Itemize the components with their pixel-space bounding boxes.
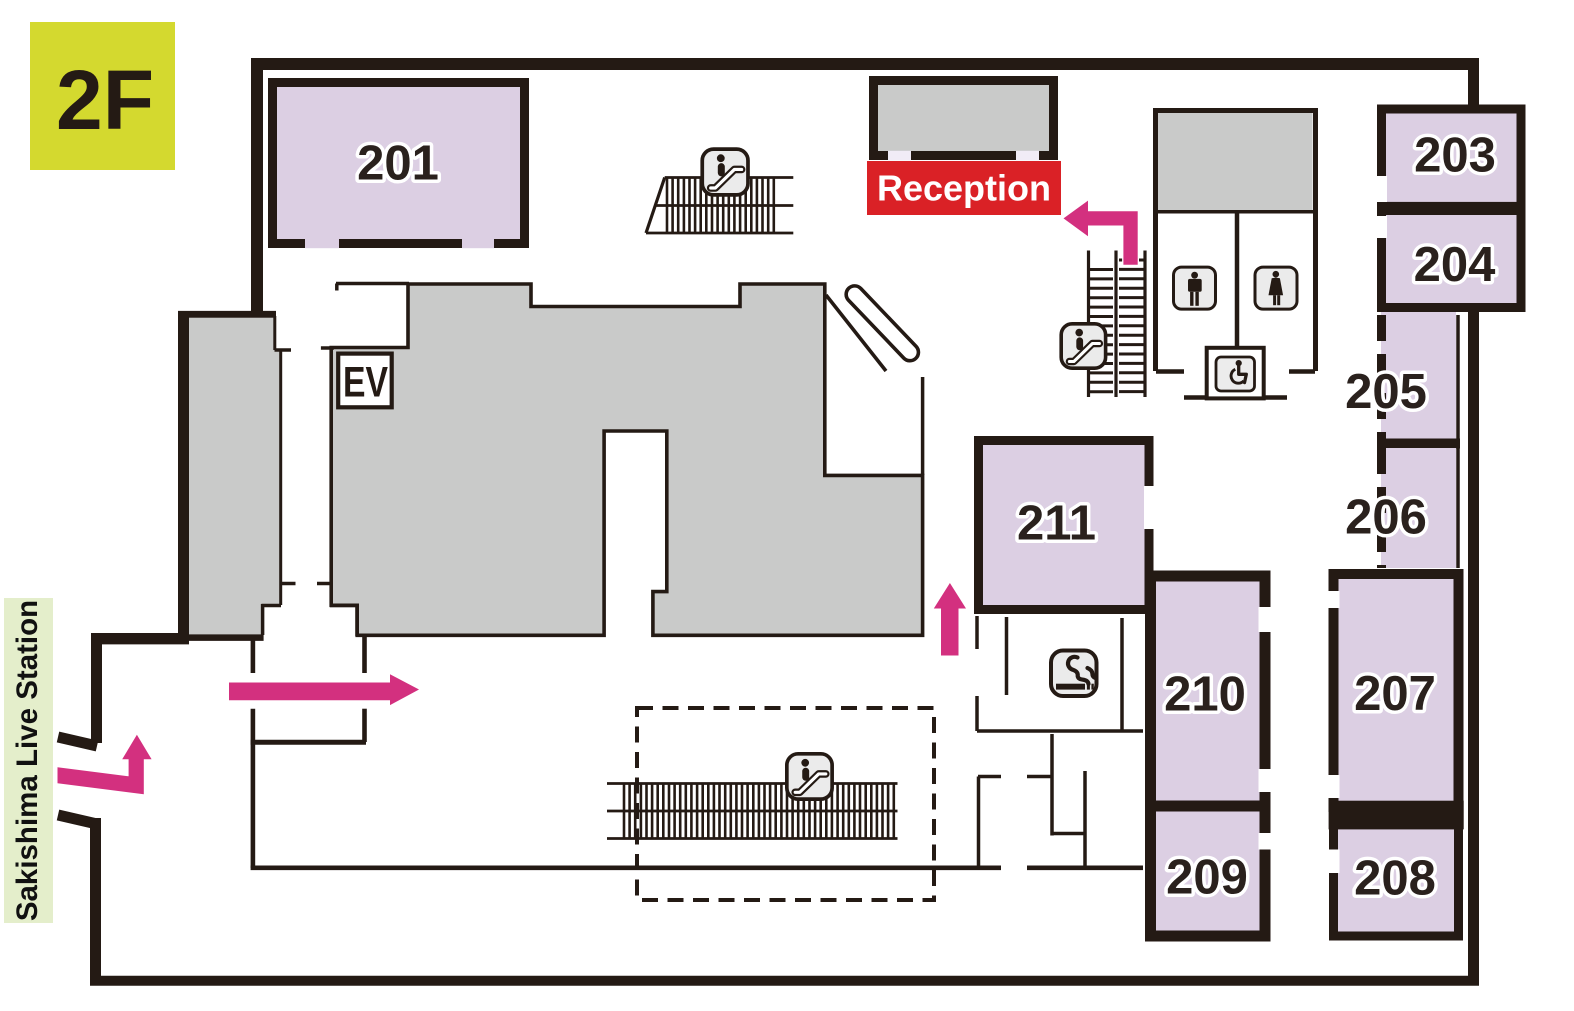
svg-text:Sakishima Live Station: Sakishima Live Station [11,600,44,921]
svg-text:205: 205 [1345,365,1427,419]
svg-text:210: 210 [1164,668,1246,722]
svg-text:209: 209 [1166,851,1248,905]
svg-text:201: 201 [357,137,439,191]
svg-text:203: 203 [1414,129,1496,183]
svg-text:207: 207 [1354,667,1436,721]
svg-text:208: 208 [1354,852,1436,906]
svg-text:2F: 2F [56,53,154,147]
svg-text:Reception: Reception [877,168,1051,209]
svg-text:211: 211 [1017,497,1096,551]
svg-text:EV: EV [343,359,388,407]
svg-text:204: 204 [1414,238,1496,292]
svg-text:206: 206 [1345,491,1427,545]
